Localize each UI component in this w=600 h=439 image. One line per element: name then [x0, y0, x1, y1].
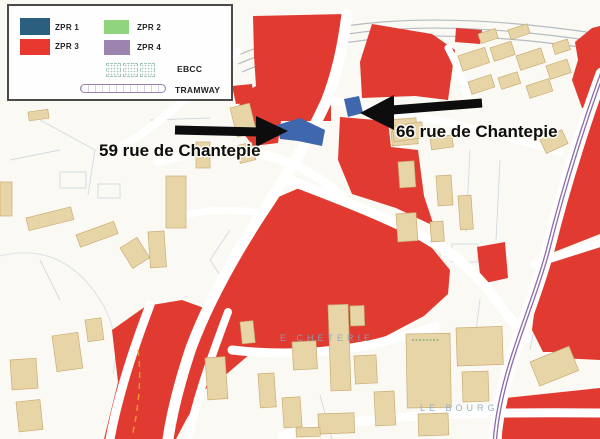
zpr3-swatch [20, 39, 50, 55]
zpr4-swatch [104, 40, 130, 55]
zpr1-legend-label: ZPR 1 [55, 23, 79, 32]
ebcc-legend-label: EBCC [177, 64, 202, 74]
tramway-symbol [80, 84, 166, 93]
ebcc-pattern-swatch [123, 63, 138, 77]
ebcc-pattern-swatch [140, 63, 155, 77]
legend-box: ZPR 1 ZPR 2 ZPR 3 ZPR 4 EBCC TRAMWAY [7, 4, 233, 101]
label-66-rue-de-chantepie: 66 rue de Chantepie [396, 122, 558, 141]
ebcc-pattern-swatch [106, 63, 121, 77]
label-59-rue-de-chantepie: 59 rue de Chantepie [99, 141, 261, 160]
zpr2-swatch [104, 20, 129, 34]
scanned-zoning-map: E CHETERIE LE BOURG 59 rue de Chantepie … [0, 0, 600, 439]
zpr3-legend-label: ZPR 3 [55, 42, 79, 51]
tramway-legend-label: TRAMWAY [175, 85, 220, 95]
zpr1-swatch [20, 18, 50, 35]
zpr2-legend-label: ZPR 2 [137, 23, 161, 32]
district-name-text: E CHETERIE [280, 333, 374, 343]
zpr4-legend-label: ZPR 4 [137, 43, 161, 52]
bourg-name-text: LE BOURG [420, 403, 499, 413]
